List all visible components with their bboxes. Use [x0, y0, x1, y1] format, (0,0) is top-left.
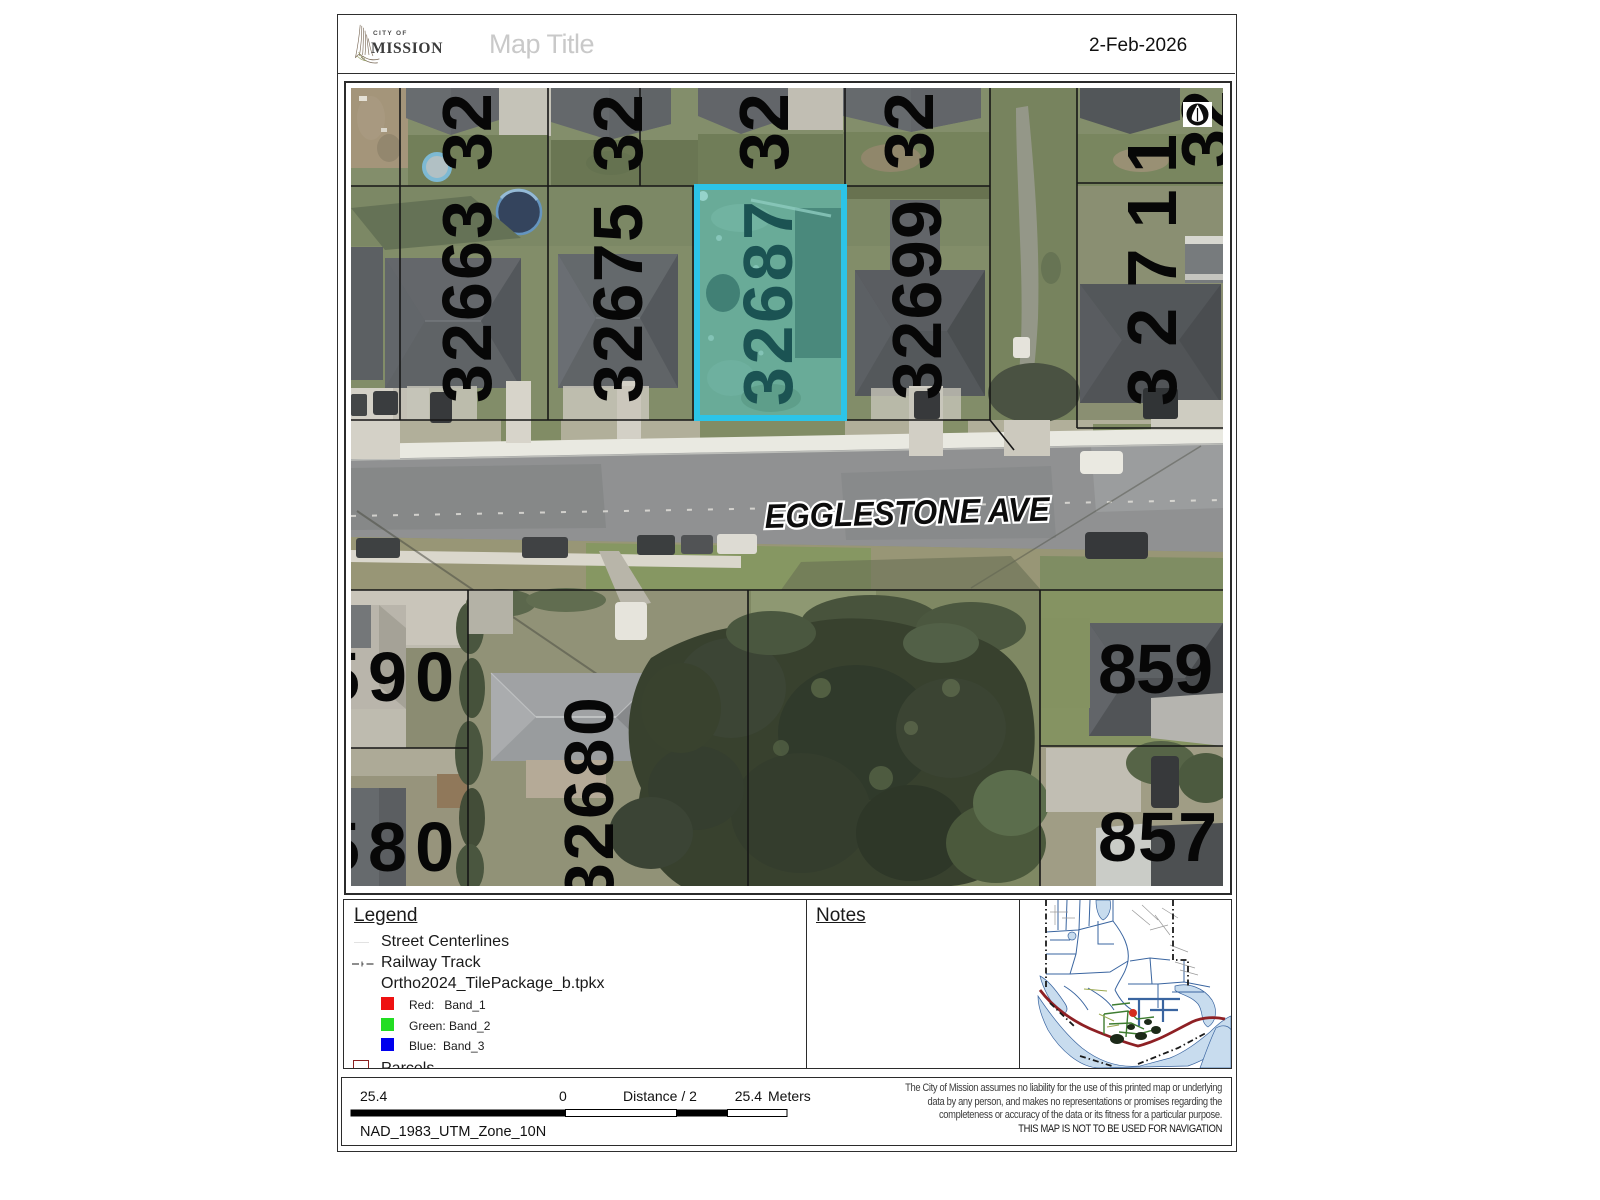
svg-text:32680: 32680: [550, 697, 628, 886]
svg-text:32: 32: [870, 92, 948, 170]
svg-text:MISSION: MISSION: [371, 40, 443, 57]
svg-text:32: 32: [579, 94, 657, 172]
svg-text:32: 32: [725, 93, 803, 171]
svg-text:32699: 32699: [878, 200, 956, 400]
svg-text:EGGLESTONE AVE: EGGLESTONE AVE: [764, 491, 1051, 536]
svg-text:32: 32: [428, 93, 506, 171]
svg-text:CITY OF: CITY OF: [373, 30, 408, 37]
svg-text:859: 859: [1098, 630, 1213, 708]
svg-text:32663: 32663: [428, 200, 506, 403]
svg-text:857: 857: [1098, 798, 1217, 876]
svg-text:32675: 32675: [579, 203, 657, 403]
